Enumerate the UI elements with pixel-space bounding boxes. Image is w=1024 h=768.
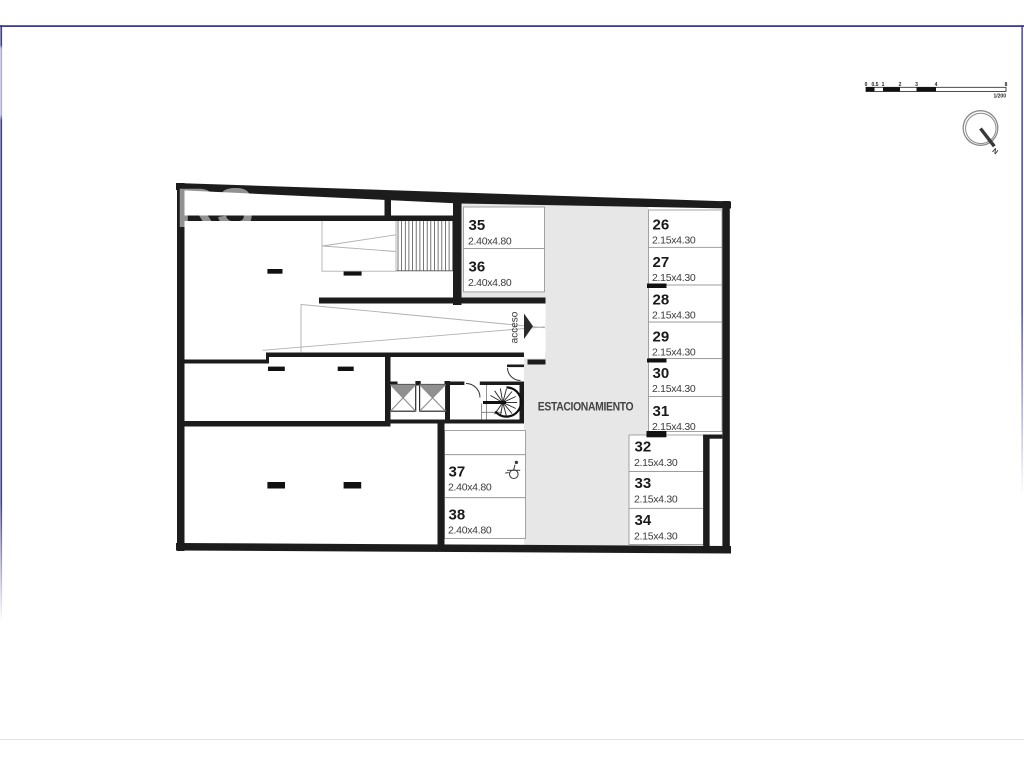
svg-text:ESTACIONAMIENTO: ESTACIONAMIENTO — [538, 400, 634, 414]
svg-text:0.5: 0.5 — [872, 82, 879, 88]
svg-text:29: 29 — [653, 329, 670, 346]
svg-text:4: 4 — [935, 82, 938, 88]
svg-text:3: 3 — [915, 82, 918, 88]
svg-text:2: 2 — [899, 82, 902, 88]
svg-text:37: 37 — [449, 464, 466, 481]
svg-text:acceso: acceso — [510, 311, 521, 343]
svg-text:2.15x4.30: 2.15x4.30 — [652, 235, 696, 247]
svg-text:28: 28 — [653, 292, 670, 309]
svg-text:1: 1 — [882, 82, 885, 88]
svg-text:2.40x4.80: 2.40x4.80 — [448, 482, 492, 494]
svg-text:8: 8 — [1005, 82, 1008, 88]
svg-text:2.15x4.30: 2.15x4.30 — [634, 531, 678, 543]
svg-text:26: 26 — [653, 217, 670, 234]
svg-text:2.15x4.30: 2.15x4.30 — [634, 457, 678, 469]
svg-text:2.40x4.80: 2.40x4.80 — [468, 277, 512, 289]
svg-text:2.40x4.80: 2.40x4.80 — [468, 236, 512, 248]
svg-text:2.15x4.30: 2.15x4.30 — [652, 310, 696, 322]
svg-text:2.40x4.80: 2.40x4.80 — [448, 525, 492, 537]
svg-text:RS: RS — [176, 176, 254, 239]
svg-text:33: 33 — [635, 475, 652, 492]
svg-text:2.15x4.30: 2.15x4.30 — [652, 272, 696, 284]
svg-text:31: 31 — [653, 403, 670, 420]
svg-text:36: 36 — [469, 259, 486, 276]
svg-text:30: 30 — [653, 365, 670, 382]
svg-text:38: 38 — [449, 507, 466, 524]
svg-text:32: 32 — [635, 439, 652, 456]
svg-text:35: 35 — [469, 217, 486, 234]
svg-text:N: N — [990, 148, 998, 157]
svg-text:34: 34 — [635, 512, 652, 529]
svg-text:27: 27 — [653, 254, 670, 271]
svg-text:0: 0 — [865, 82, 868, 88]
svg-text:2.15x4.30: 2.15x4.30 — [634, 494, 678, 506]
svg-text:1/200: 1/200 — [993, 94, 1006, 100]
svg-text:2.15x4.30: 2.15x4.30 — [652, 383, 696, 395]
svg-text:2.15x4.30: 2.15x4.30 — [652, 347, 696, 359]
